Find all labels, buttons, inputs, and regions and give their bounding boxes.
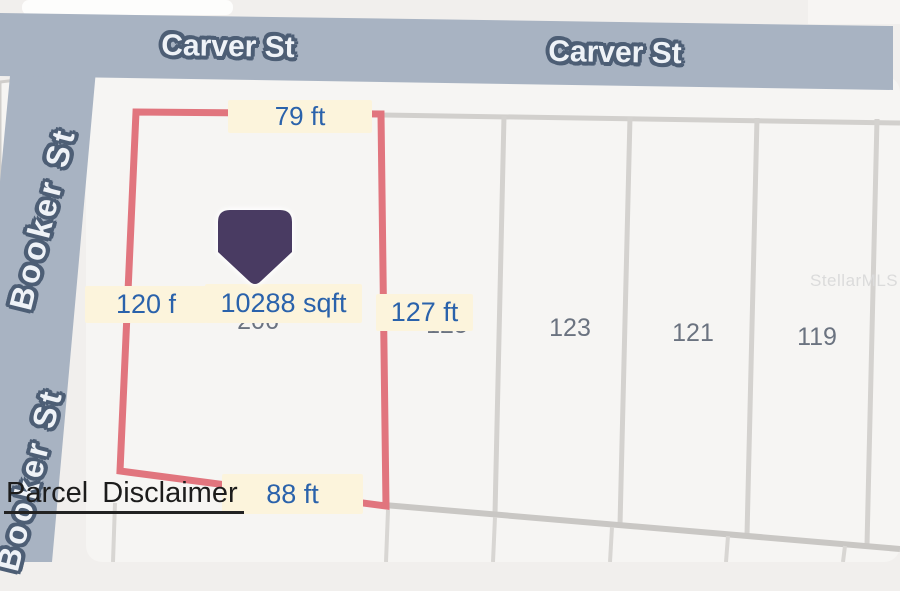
parcel-grid-stub: [386, 510, 388, 562]
dim-label-right: 127 ft: [376, 294, 473, 331]
street-label-carver-east: Carver St: [505, 34, 726, 72]
parcel-number-121: 121: [666, 319, 720, 348]
parcel-map-screenshot: { "map": { "street_carver": "Carver St",…: [0, 0, 900, 562]
street-label-carver-west: Carver St: [118, 28, 339, 66]
parcel-grid-stub: [610, 527, 612, 562]
map-canvas: Carver St Carver St Booker St Booker St …: [0, 0, 900, 562]
dim-label-top: 79 ft: [228, 100, 372, 133]
parcel-grid-stub: [726, 536, 728, 562]
parcel-number-123: 123: [543, 314, 597, 343]
north-parcel-right: [808, 0, 900, 24]
lot-marker-icon: [210, 202, 300, 302]
lot-marker-shape: [218, 210, 292, 284]
dim-label-left: 120 f: [85, 286, 207, 323]
north-parcel: [22, 0, 233, 15]
parcel-grid-stub: [493, 517, 495, 562]
stellar-mls-watermark: StellarMLS: [810, 271, 898, 291]
parcel-grid-stub: [843, 546, 845, 562]
parcel-disclaimer-link[interactable]: Parcel Disclaimer: [4, 477, 244, 514]
parcel-number-119: 119: [790, 323, 844, 352]
